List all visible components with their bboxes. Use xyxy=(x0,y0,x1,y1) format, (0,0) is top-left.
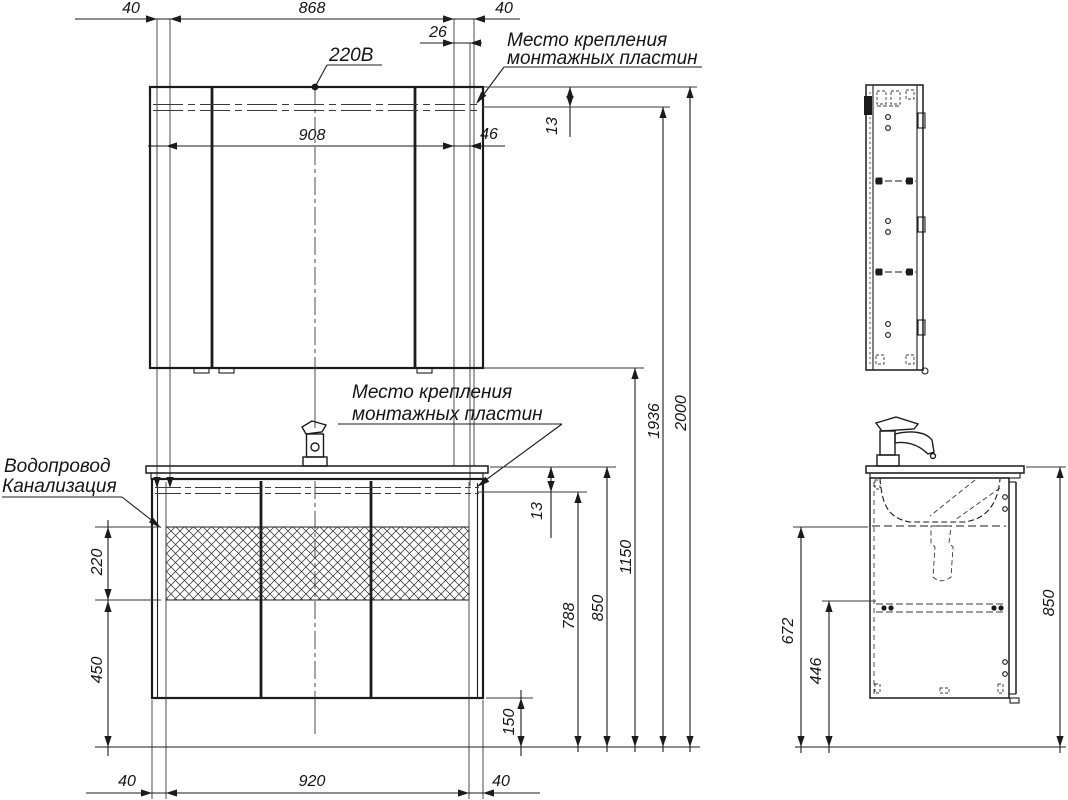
technical-drawing-canvas: 40 868 40 26 908 46 13 220В xyxy=(0,0,1068,800)
dim-bottom-right-40: 40 xyxy=(492,773,510,790)
dim-left-450: 450 xyxy=(89,657,106,684)
dim-bottom-150: 150 xyxy=(501,709,518,736)
dim-bottom-left-40: 40 xyxy=(118,773,136,790)
dim-side-850: 850 xyxy=(1041,590,1058,617)
dim-right-788: 788 xyxy=(561,603,578,630)
dim-mirror-13: 13 xyxy=(544,117,561,135)
dim-left-220: 220 xyxy=(89,549,106,577)
dim-right-1150: 1150 xyxy=(618,540,635,575)
plumbing-zone-hatch xyxy=(166,527,469,600)
dim-mirror-908: 908 xyxy=(299,127,326,144)
dim-right-850: 850 xyxy=(590,595,607,622)
callout-water-supply: Водопровод xyxy=(4,456,110,477)
dim-right-1936: 1936 xyxy=(646,403,663,439)
background xyxy=(0,0,1068,800)
callout-sewerage: Канализация xyxy=(2,476,117,497)
dim-top-868: 868 xyxy=(299,0,326,17)
callout-mounting-plates-top-line2: монтажных пластин xyxy=(507,48,698,69)
dim-side-672: 672 xyxy=(780,618,797,645)
furniture-installation-drawing: 40 868 40 26 908 46 13 220В xyxy=(0,0,1068,800)
callout-mounting-plates-mid-line2: монтажных пластин xyxy=(352,404,543,425)
callout-mounting-plates-mid-line1: Место крепления xyxy=(352,382,512,403)
dim-vanity-13: 13 xyxy=(529,502,546,520)
dim-top-right-40: 40 xyxy=(495,0,513,17)
dim-top-left-40: 40 xyxy=(122,0,140,17)
wall-bracket xyxy=(864,96,872,115)
dim-top-26: 26 xyxy=(428,24,447,41)
dim-right-2000: 2000 xyxy=(673,395,690,432)
dim-side-446: 446 xyxy=(808,658,825,685)
dim-bottom-920: 920 xyxy=(299,773,326,790)
callout-power-220v: 220В xyxy=(328,45,374,66)
